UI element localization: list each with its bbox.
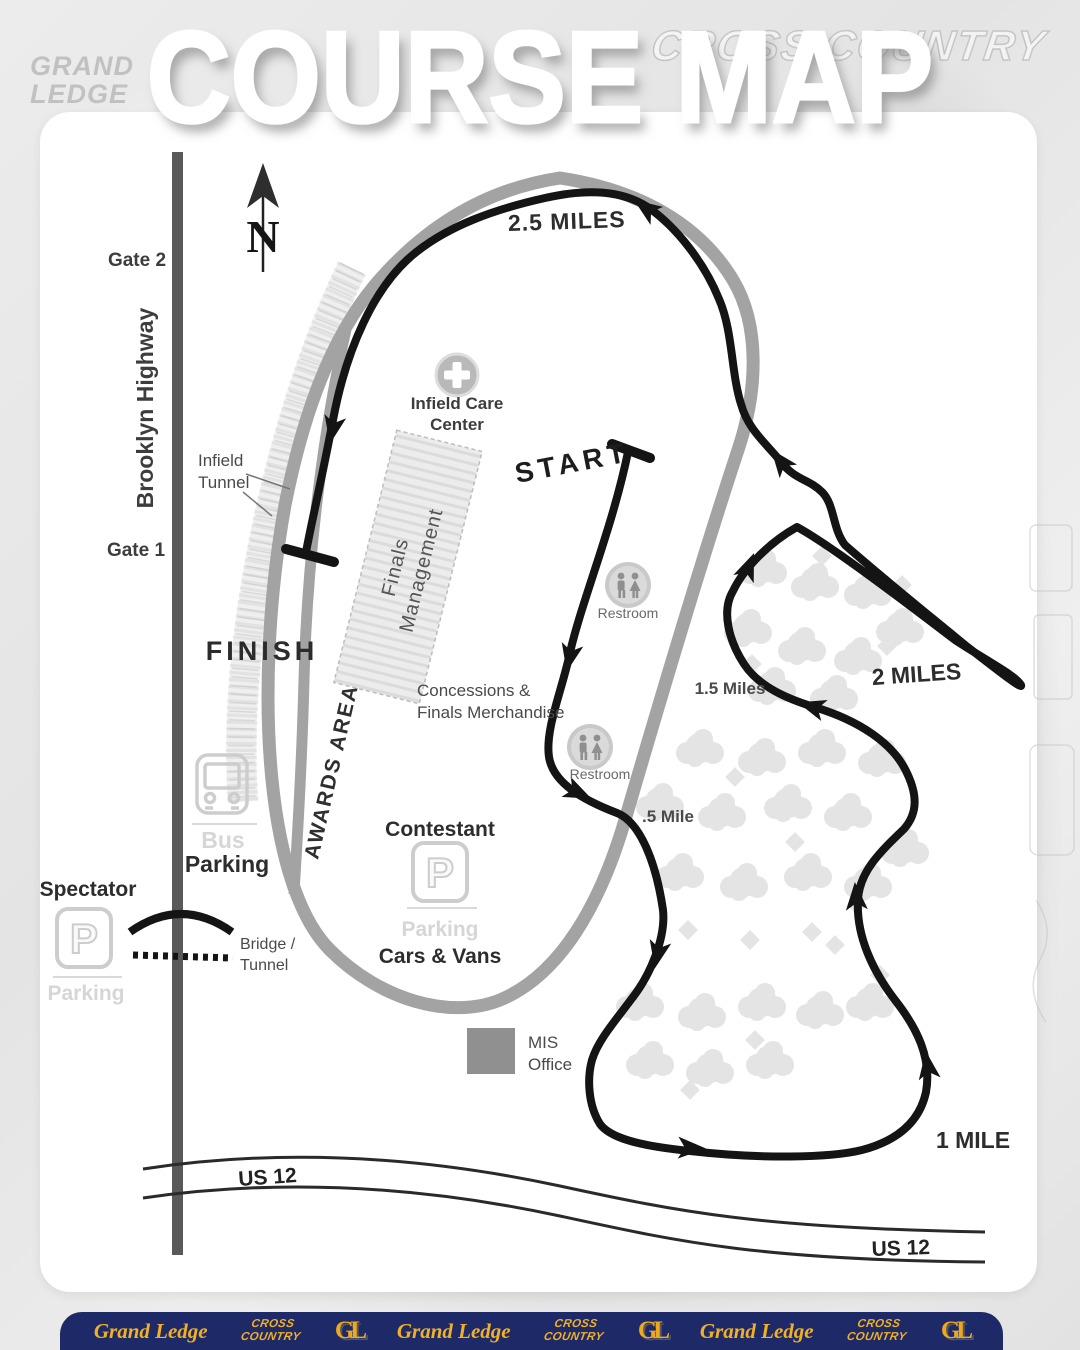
contestant-parking-label: Parking xyxy=(401,918,478,941)
infield-care-line2: Center xyxy=(430,415,484,434)
finish-label: FINISH xyxy=(206,636,319,666)
background-sketch-doodles xyxy=(1030,525,1074,1022)
footer-monogram-2: GL xyxy=(638,1317,666,1345)
footer-sport-3-line1: CROSS xyxy=(848,1318,910,1331)
us12-west-label: US 12 xyxy=(238,1164,298,1191)
brooklyn-highway-label: Brooklyn Highway xyxy=(132,307,158,508)
north-label: N xyxy=(246,211,279,262)
finish-line xyxy=(286,549,334,562)
footer-brand-2: Grand Ledge xyxy=(397,1319,511,1344)
footer-bar: Grand Ledge CROSS COUNTRY GL Grand Ledge… xyxy=(60,1312,1003,1350)
paper-background: GRAND LEDGE CROSS COUNTRY COURSE MAP xyxy=(0,0,1080,1350)
bridge-tunnel-line1: Bridge / xyxy=(240,936,296,953)
contestant-note: Cars & Vans xyxy=(379,945,502,968)
footer-brand-1: Grand Ledge xyxy=(94,1319,208,1344)
footer-sport-3: CROSS COUNTRY xyxy=(845,1318,909,1343)
spectator-parking-label: Parking xyxy=(47,982,124,1005)
restroom-north-label: Restroom xyxy=(598,605,659,621)
marker-2-5-miles: 2.5 MILES xyxy=(507,206,625,236)
footer-sport-2-line2: COUNTRY xyxy=(542,1331,604,1344)
bus-parking-line1: Bus xyxy=(201,827,244,853)
us12-east-label: US 12 xyxy=(871,1236,930,1261)
finals-management-stand: Finals Management xyxy=(334,430,482,704)
infield-tunnel-line2: Tunnel xyxy=(198,473,249,492)
mis-office-building xyxy=(467,1028,515,1074)
marker-half-mile: .5 Mile xyxy=(642,807,694,826)
concessions-line1: Concessions & xyxy=(417,681,531,700)
north-arrow-icon: N xyxy=(246,163,279,272)
spectator-title: Spectator xyxy=(40,878,137,901)
mis-office-line2: Office xyxy=(528,1055,572,1074)
page-title: COURSE MAP xyxy=(0,2,1080,152)
course-map: P xyxy=(0,0,1080,1350)
brooklyn-highway-road xyxy=(172,152,183,1255)
concessions-line2: Finals Merchandise xyxy=(417,703,564,722)
footer-monogram-1: GL xyxy=(335,1317,363,1345)
marker-1-5-miles: 1.5 Miles xyxy=(695,679,766,698)
footer-sport-2-line1: CROSS xyxy=(545,1318,607,1331)
footer-sport-1-line1: CROSS xyxy=(242,1318,304,1331)
marker-2-miles: 2 MILES xyxy=(871,658,962,690)
infield-tunnel-line1: Infield xyxy=(198,451,243,470)
footer-monogram-3: GL xyxy=(941,1317,969,1345)
footer-sport-1-line2: COUNTRY xyxy=(239,1331,301,1344)
marker-1-mile: 1 MILE xyxy=(936,1127,1010,1153)
mis-office-line1: MIS xyxy=(528,1033,558,1052)
restroom-south-label: Restroom xyxy=(570,766,631,782)
footer-sport-3-line2: COUNTRY xyxy=(845,1331,907,1344)
awards-area-label: AWARDS AREA xyxy=(300,682,363,861)
contestant-title: Contestant xyxy=(385,818,495,841)
footer-brand-3: Grand Ledge xyxy=(700,1319,814,1344)
bus-parking-line2: Parking xyxy=(185,851,269,877)
infield-care-line1: Infield Care xyxy=(411,394,504,413)
gate-1-label: Gate 1 xyxy=(107,540,166,561)
bridge-tunnel-line2: Tunnel xyxy=(240,957,288,974)
gate-2-label: Gate 2 xyxy=(108,250,166,271)
start-label: START xyxy=(512,436,632,489)
footer-sport-2: CROSS COUNTRY xyxy=(542,1318,606,1343)
footer-sport-1: CROSS COUNTRY xyxy=(239,1318,303,1343)
